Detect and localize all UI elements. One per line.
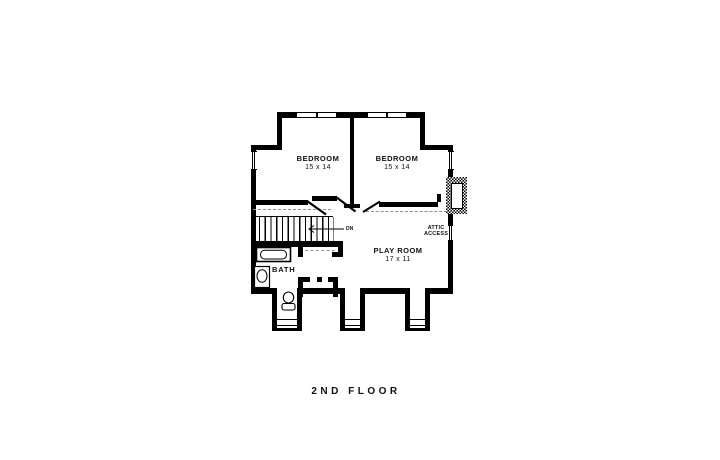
room-size: 17 x 11: [360, 256, 436, 265]
room-name: BEDROOM: [359, 155, 435, 164]
room-label-bath: BATH: [272, 265, 295, 274]
toilet-icon: [282, 292, 295, 310]
sink-icon: [255, 267, 270, 288]
room-label-bedroom-left: BEDROOM 15 x 14: [280, 155, 356, 172]
room-label-bedroom-right: BEDROOM 15 x 14: [359, 155, 435, 172]
stairs-down-label: DN: [346, 226, 353, 232]
attic-access-label: ATTIC ACCESS: [419, 225, 453, 238]
stair-direction-arrow: [309, 226, 344, 233]
bathtub-icon: [257, 248, 291, 262]
attic-access-line2: ACCESS: [419, 231, 453, 238]
room-size: 15 x 14: [280, 164, 356, 173]
room-label-play-room: PLAY ROOM 17 x 11: [360, 247, 436, 264]
plan-title: 2ND FLOOR: [260, 386, 452, 397]
room-name: BEDROOM: [280, 155, 356, 164]
floor-plan: BEDROOM 15 x 14 BEDROOM 15 x 14 PLAY ROO…: [0, 0, 720, 460]
room-name: PLAY ROOM: [360, 247, 436, 256]
closet-door-line: [307, 197, 380, 215]
room-size: 15 x 14: [359, 164, 435, 173]
